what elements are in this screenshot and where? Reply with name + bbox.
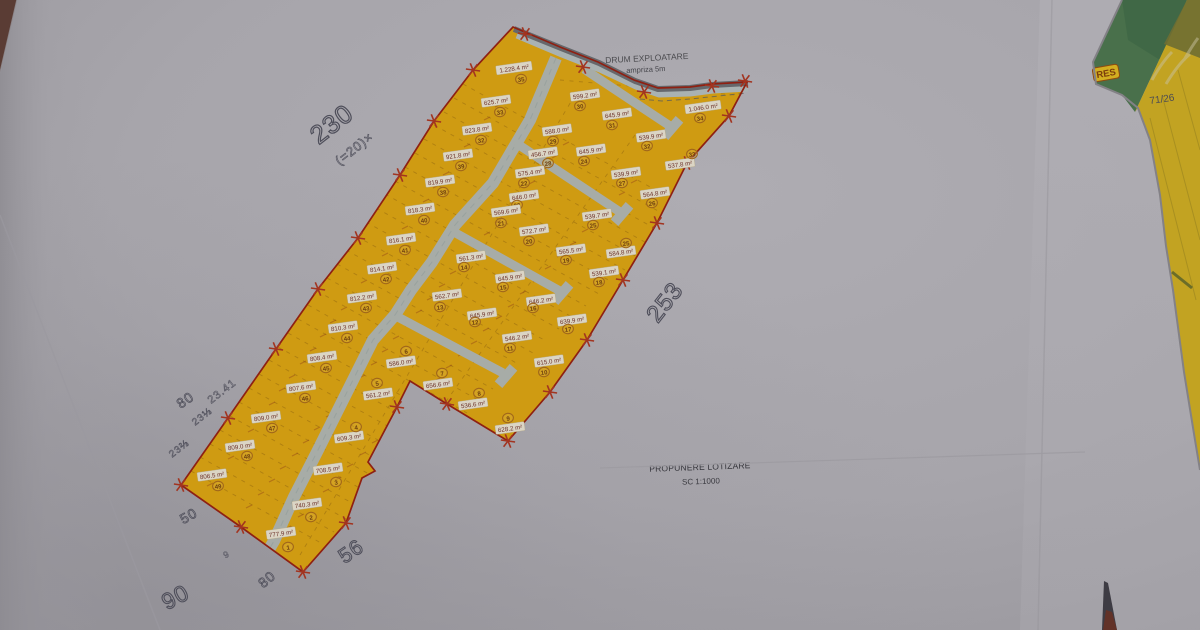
svg-text:SC 1:1000: SC 1:1000	[682, 476, 721, 486]
